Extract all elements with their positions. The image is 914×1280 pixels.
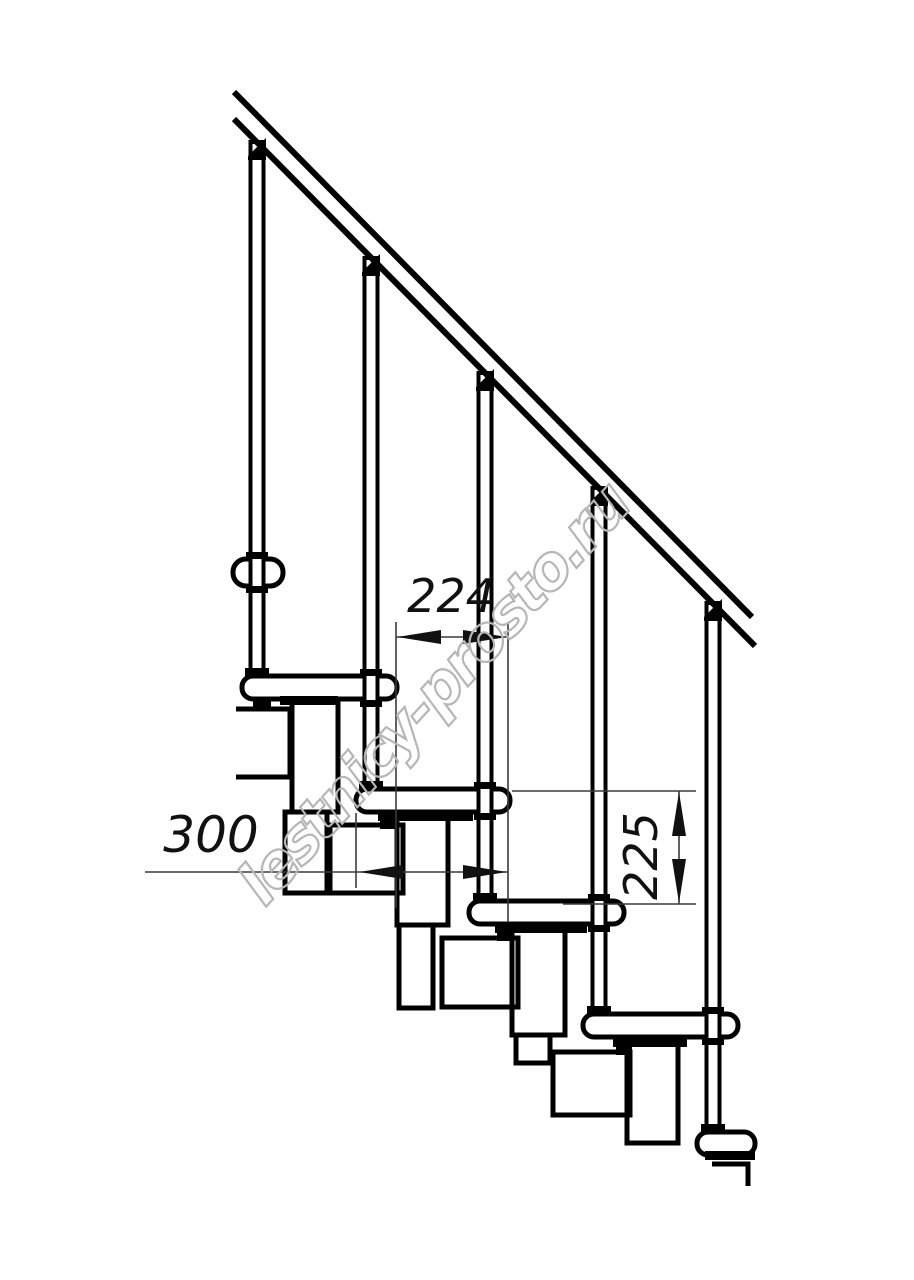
clamp [246,586,268,593]
baluster-1-shaft [251,142,264,676]
module-neck-lower-2 [399,925,433,1008]
module-box-5-cut [712,1164,748,1186]
underside-plate-1 [280,696,338,705]
clamp [588,894,610,901]
baluster-5 [701,599,725,1133]
baluster-4-foot [587,1006,611,1015]
arrow-left-icon [359,865,403,879]
staircase-technical-drawing: 224 300 225 lestnicy-prosto.ru [0,0,914,1280]
underside-plate-2 [378,812,473,821]
clamp [474,782,496,789]
clamp [246,552,268,559]
underside-tab-3 [497,933,513,941]
baluster-1 [245,138,269,677]
drawing-svg: 224 300 225 lestnicy-prosto.ru [0,0,914,1280]
clamp [702,1007,724,1014]
baluster-5-shaft [707,603,720,1132]
underside-tab-4 [616,1047,632,1055]
underside-plate-5 [705,1151,755,1160]
underside-tab-2 [380,821,396,829]
arrow-down-icon [672,859,686,903]
module-neck-lower-3 [516,1035,550,1063]
baluster-5-foot [701,1124,725,1133]
clamp [474,813,496,820]
handrail [234,92,755,646]
dimension-225-label: 225 [614,812,668,900]
arrow-up-icon [672,792,686,836]
module-neck-upper-4 [627,1040,678,1143]
handrail-bottom-line [234,119,755,646]
clamp [702,1038,724,1045]
underside-tab-1 [253,699,271,707]
baluster-3-foot [473,893,497,902]
module-box-4 [553,1052,630,1115]
underside-plate-4 [613,1038,687,1047]
module-box-3 [442,938,518,1007]
clamp [588,925,610,932]
underside-plate-3 [495,924,587,933]
baluster-1-foot [245,668,269,677]
module-box-1 [236,709,290,777]
clamp [360,669,382,676]
